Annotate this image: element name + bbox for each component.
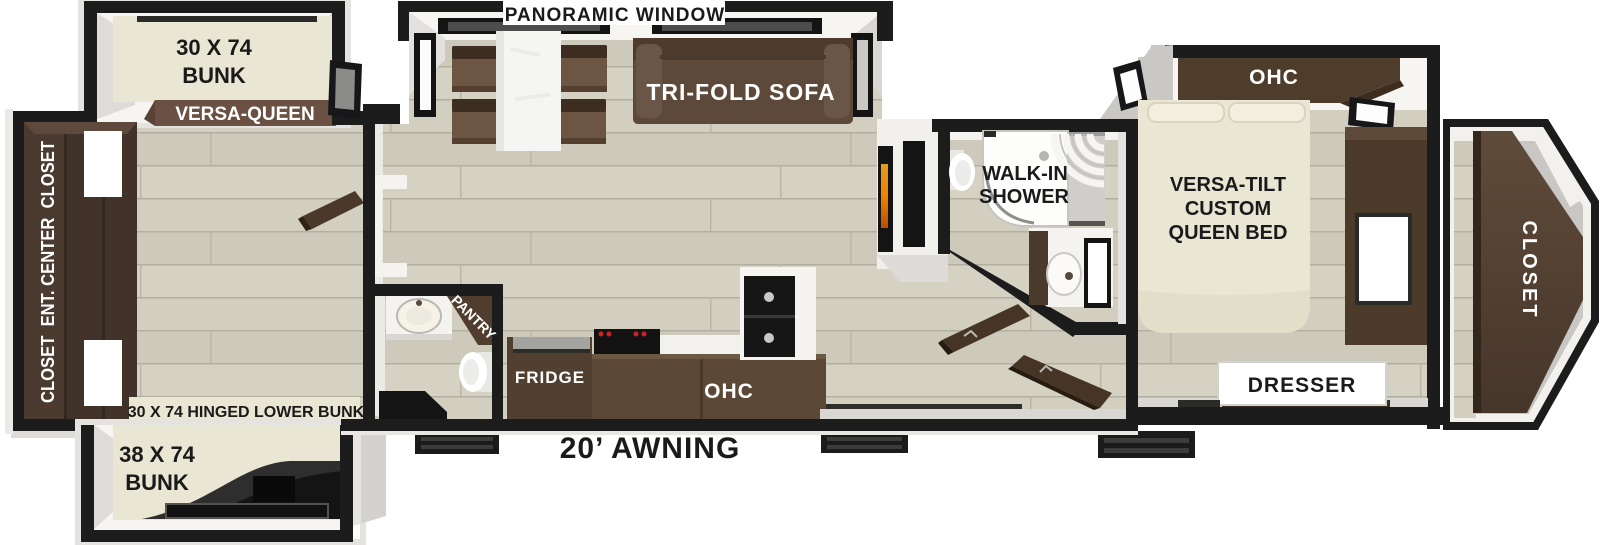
svg-text:SHOWER: SHOWER	[979, 186, 1070, 208]
svg-text:38 X 74: 38 X 74	[119, 442, 196, 467]
svg-text:CUSTOM: CUSTOM	[1185, 198, 1271, 220]
svg-text:QUEEN BED: QUEEN BED	[1169, 222, 1288, 244]
svg-text:CLOSET: CLOSET	[1518, 220, 1540, 319]
svg-text:DRESSER: DRESSER	[1248, 374, 1357, 397]
svg-text:BUNK: BUNK	[125, 470, 189, 495]
svg-text:FRIDGE: FRIDGE	[515, 368, 585, 387]
svg-text:OHC: OHC	[704, 380, 754, 403]
svg-text:30 X 74 HINGED LOWER BUNK: 30 X 74 HINGED LOWER BUNK	[128, 404, 365, 421]
svg-text:VERSA-TILT: VERSA-TILT	[1170, 174, 1286, 196]
svg-text:VERSA-QUEEN: VERSA-QUEEN	[175, 104, 314, 125]
svg-text:OHC: OHC	[1249, 66, 1299, 89]
svg-text:PANORAMIC WINDOW: PANORAMIC WINDOW	[505, 5, 725, 26]
svg-text:WALK-IN: WALK-IN	[982, 163, 1068, 185]
svg-text:CLOSET ENT. CENTER CLOSET: CLOSET ENT. CENTER CLOSET	[38, 141, 58, 403]
svg-text:BUNK: BUNK	[182, 63, 246, 88]
svg-text:TRI-FOLD SOFA: TRI-FOLD SOFA	[646, 79, 835, 105]
svg-text:30 X 74: 30 X 74	[176, 35, 253, 60]
svg-text:20’ AWNING: 20’ AWNING	[560, 432, 741, 465]
